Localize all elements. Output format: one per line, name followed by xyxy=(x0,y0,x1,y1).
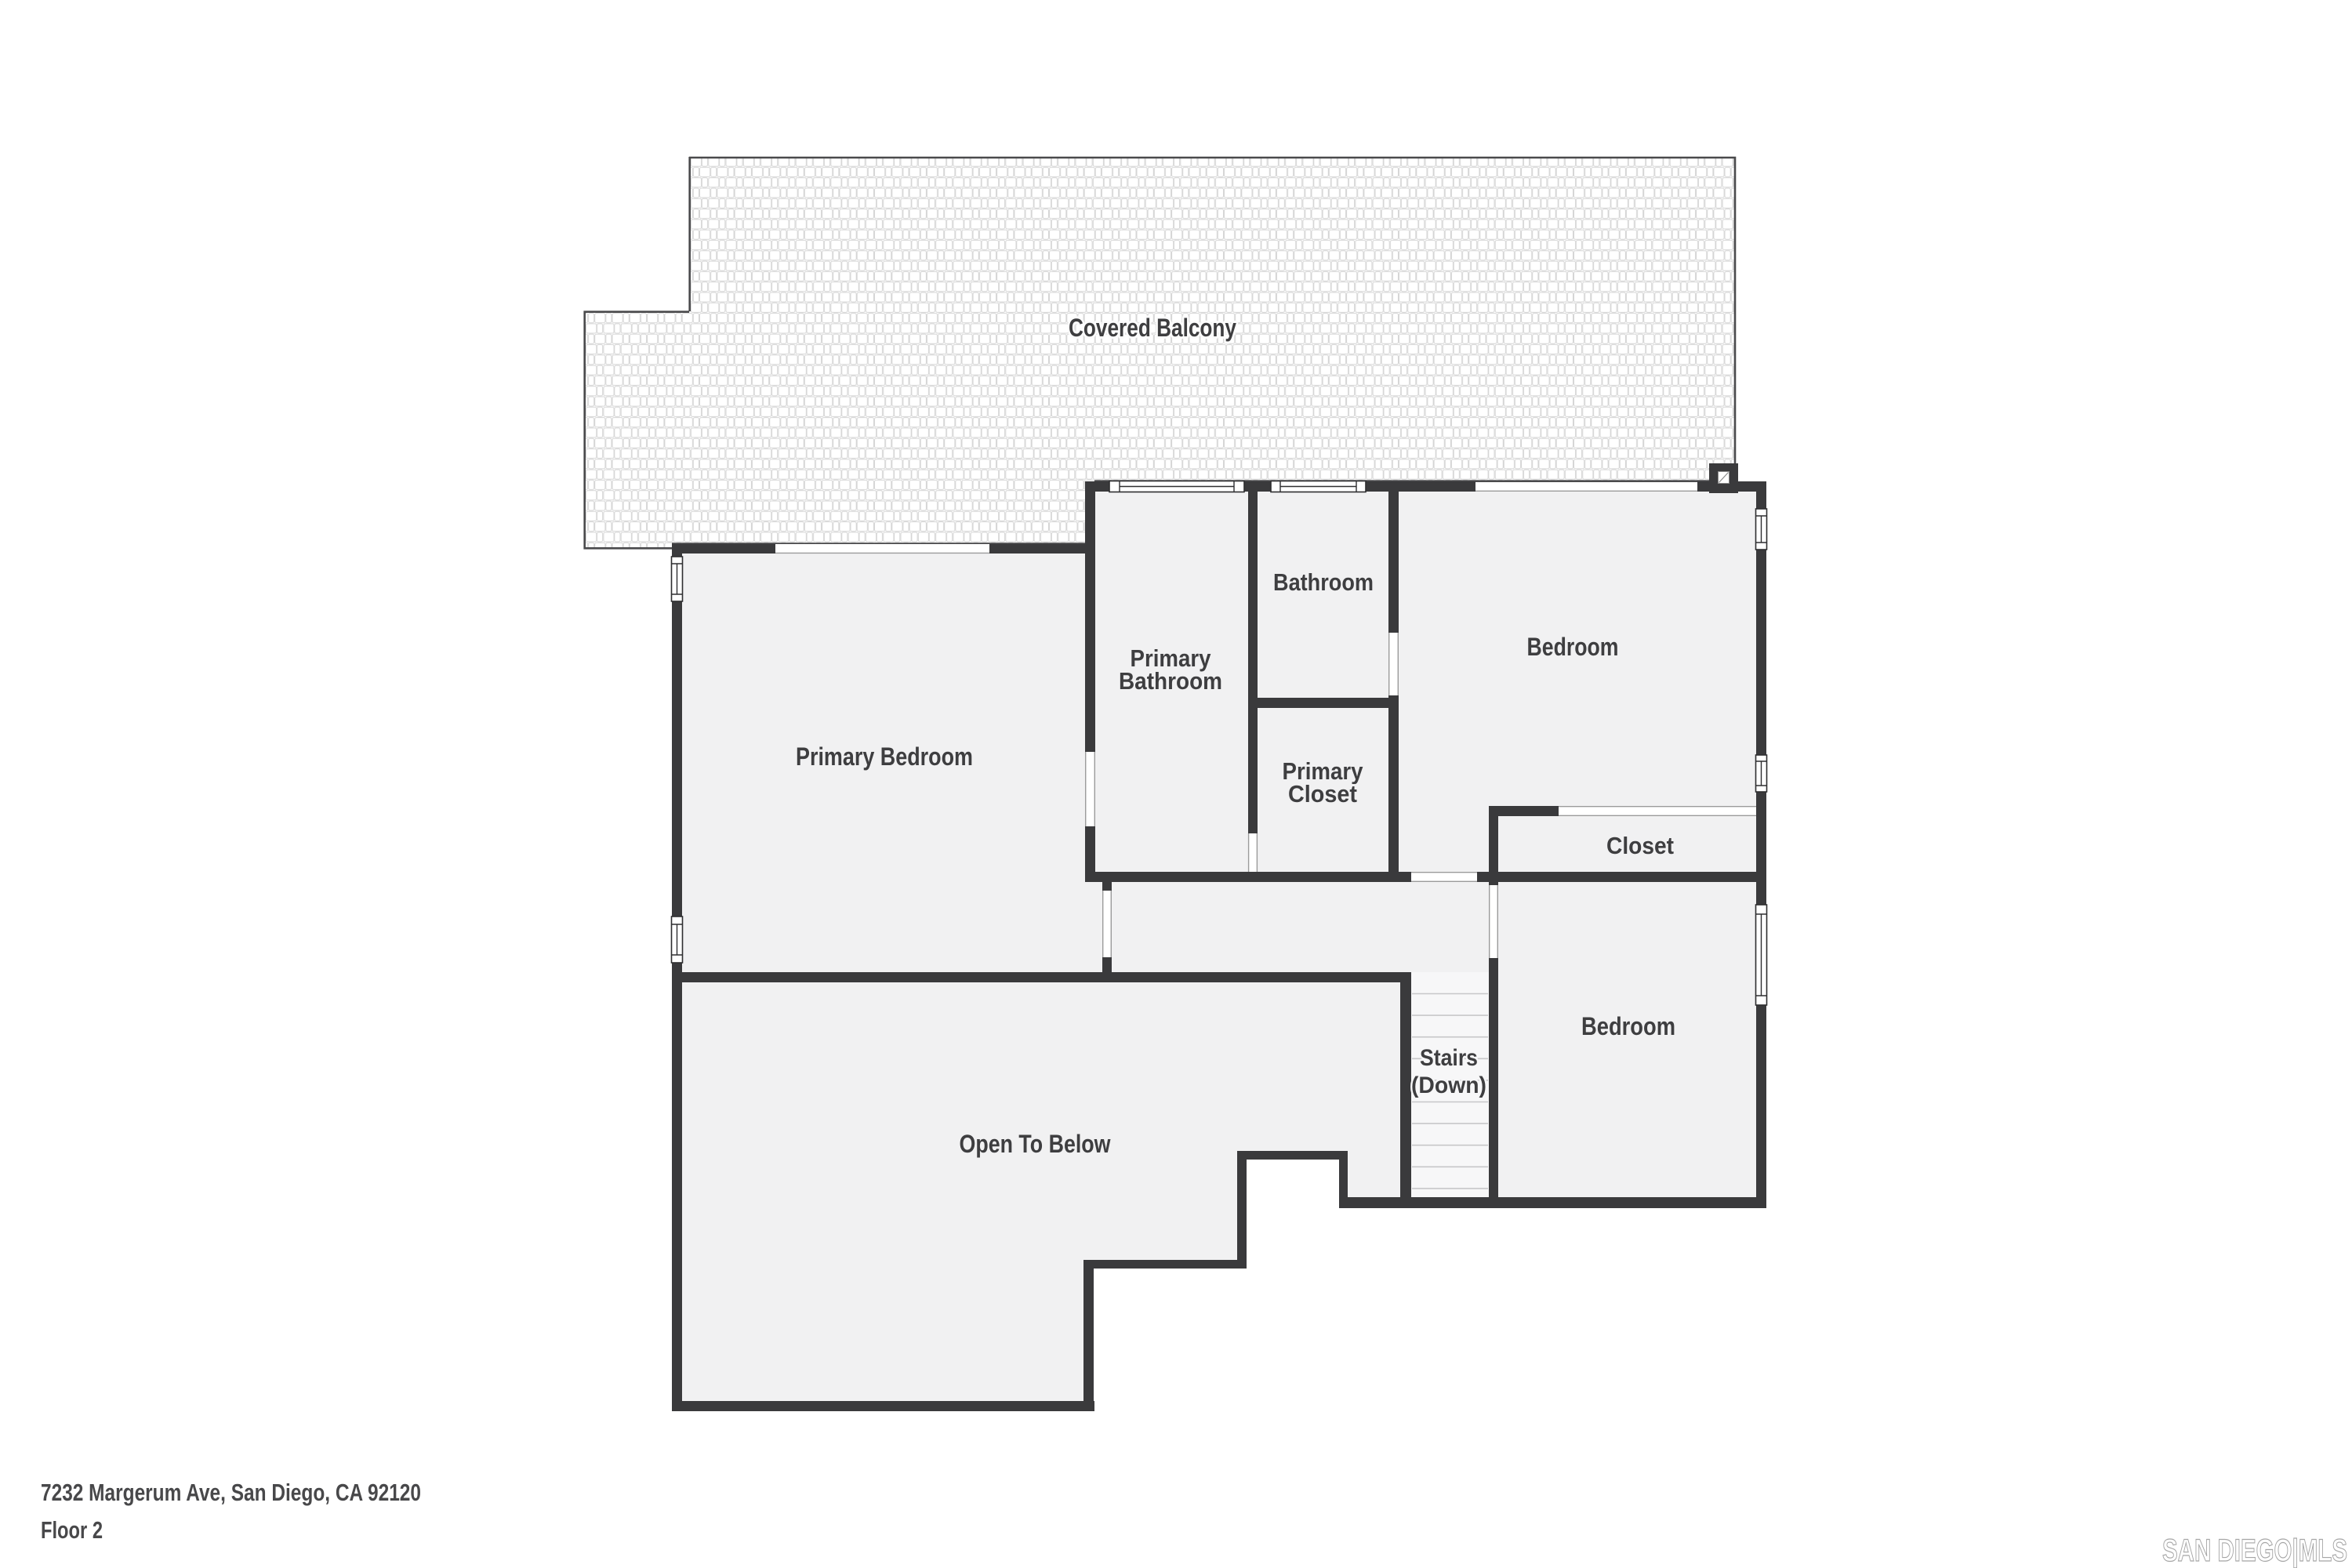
svg-text:Bedroom: Bedroom xyxy=(1581,1012,1675,1040)
svg-text:Bedroom: Bedroom xyxy=(1527,633,1619,661)
svg-text:Stairs: Stairs xyxy=(1420,1045,1478,1071)
svg-text:SAN DIEGO|MLS: SAN DIEGO|MLS xyxy=(2162,1534,2347,1568)
svg-text:Bathroom: Bathroom xyxy=(1119,667,1222,695)
svg-text:Primary Bedroom: Primary Bedroom xyxy=(796,742,973,771)
svg-text:Open To Below: Open To Below xyxy=(960,1130,1111,1158)
svg-text:Bathroom: Bathroom xyxy=(1273,568,1374,596)
svg-text:Closet: Closet xyxy=(1288,780,1357,808)
svg-text:(Down): (Down) xyxy=(1411,1073,1486,1098)
svg-text:Floor 2: Floor 2 xyxy=(41,1516,103,1544)
svg-text:Covered Balcony: Covered Balcony xyxy=(1069,314,1236,342)
svg-text:Closet: Closet xyxy=(1606,832,1674,859)
svg-text:7232 Margerum Ave, San Diego,: 7232 Margerum Ave, San Diego, CA 92120 xyxy=(41,1479,421,1506)
